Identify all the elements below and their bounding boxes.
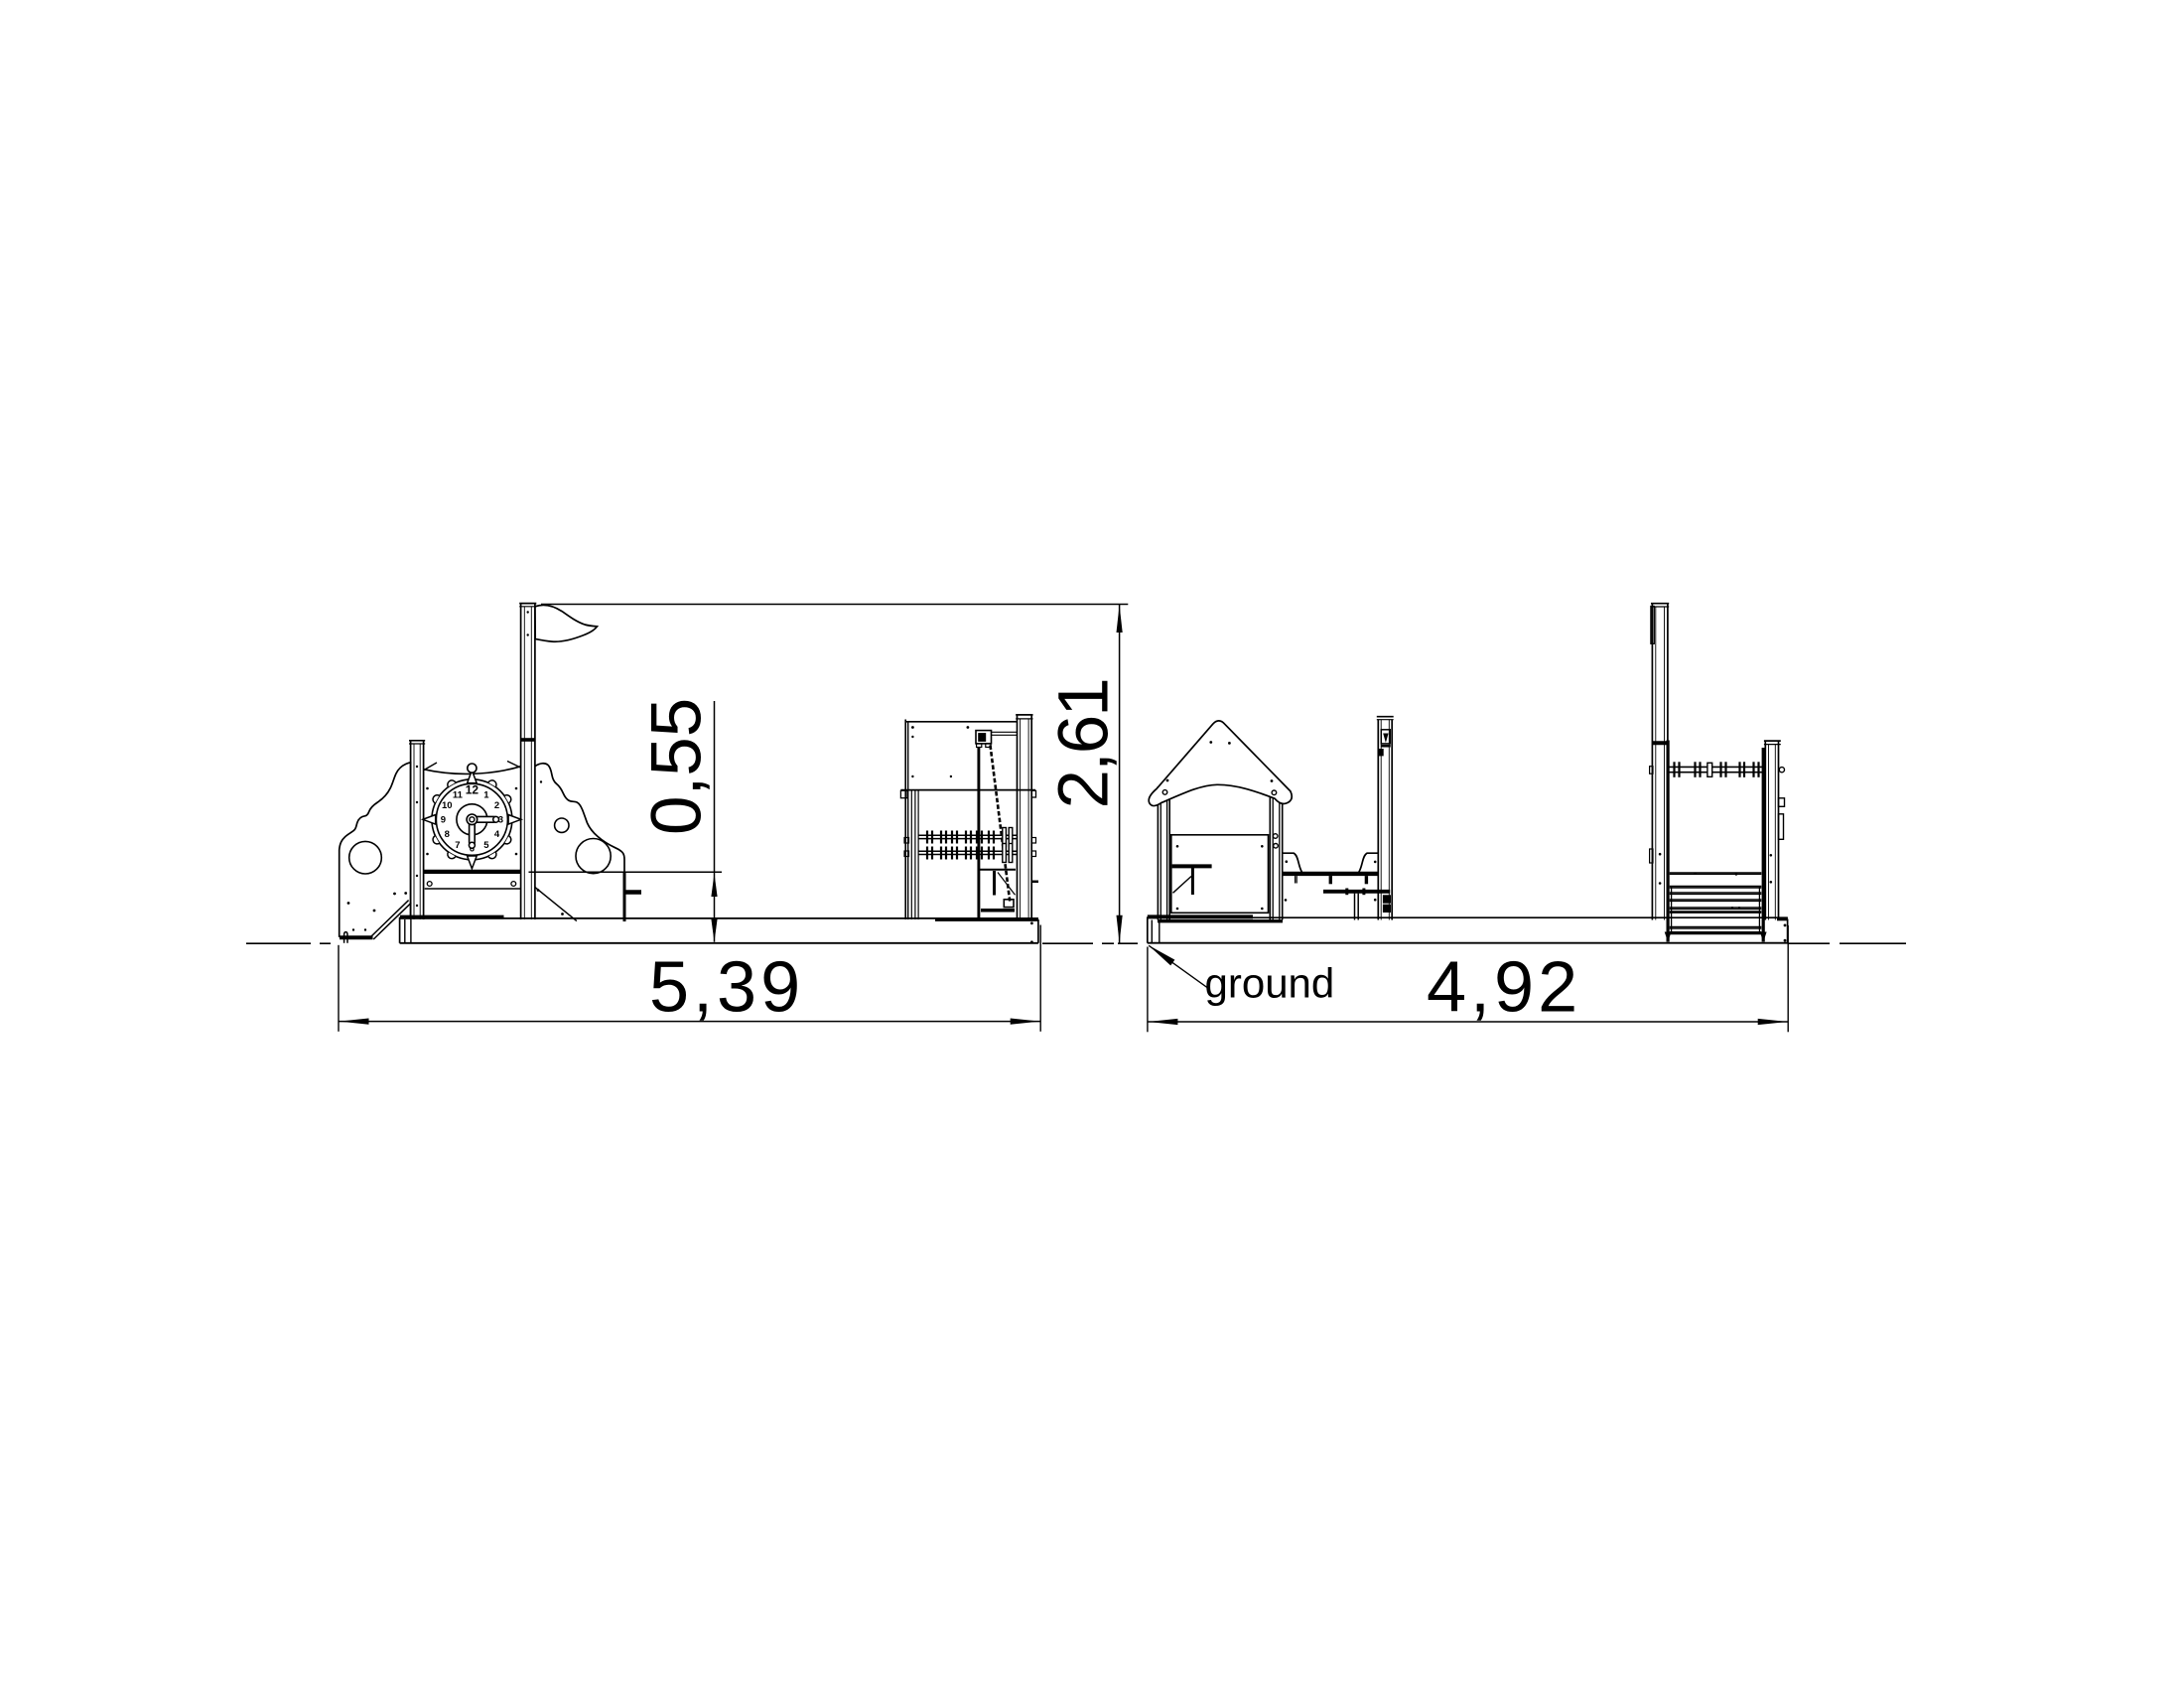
svg-text:12: 12	[466, 783, 479, 797]
svg-text:0,55: 0,55	[638, 698, 717, 835]
svg-text:5,39: 5,39	[649, 948, 804, 1028]
svg-text:2: 2	[494, 800, 499, 811]
svg-text:10: 10	[442, 800, 453, 811]
svg-text:4,92: 4,92	[1427, 948, 1581, 1028]
svg-text:8: 8	[445, 829, 450, 840]
svg-text:5: 5	[483, 840, 489, 851]
svg-text:9: 9	[441, 815, 446, 826]
svg-text:1: 1	[483, 790, 489, 801]
svg-text:4: 4	[494, 829, 500, 840]
svg-text:7: 7	[455, 840, 460, 851]
svg-text:2,61: 2,61	[1045, 679, 1124, 808]
svg-text:11: 11	[453, 790, 464, 801]
svg-text:ground: ground	[1205, 960, 1335, 1007]
